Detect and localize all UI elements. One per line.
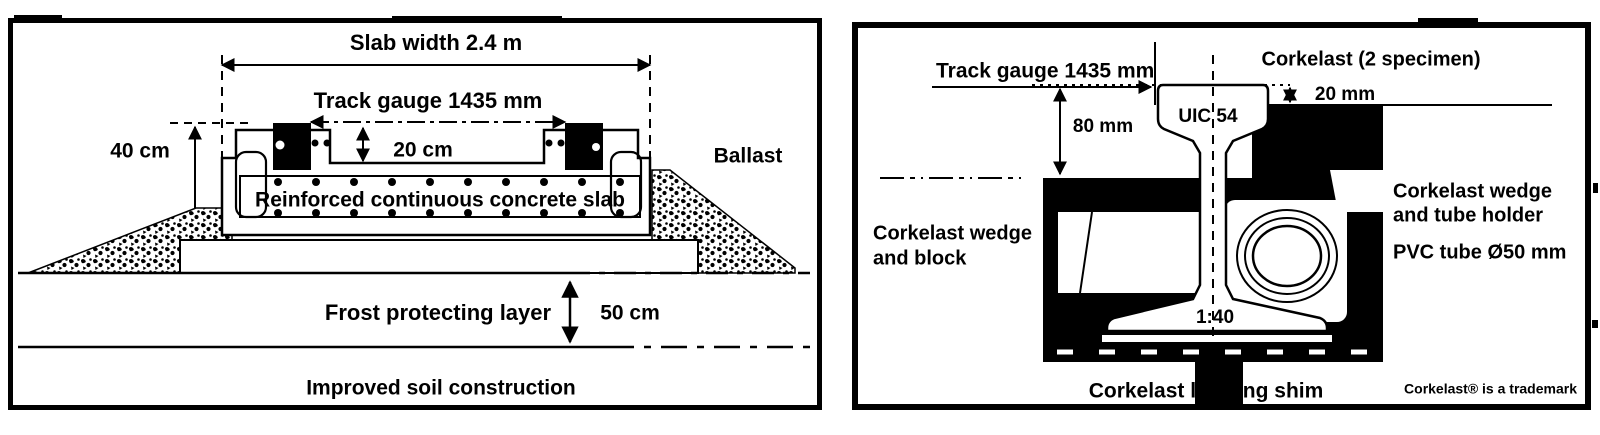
frost-layer-label: Frost protecting layer <box>325 300 552 325</box>
shim-label: Corkelast leveling shim <box>1089 380 1324 403</box>
track-gauge-label: Track gauge 1435 mm <box>314 88 543 113</box>
fastening-bolt-hole-left <box>276 141 285 150</box>
slab-text-label: Reinforced continuous concrete slab <box>255 189 625 212</box>
embedded-rail-panel: Track gauge 1435 mm Corkelast (2 specime… <box>852 22 1591 410</box>
dim-20cm-label: 20 cm <box>393 139 453 162</box>
support-layer <box>180 240 698 273</box>
ballast-label: Ballast <box>714 145 783 168</box>
rail-type-label: UIC 54 <box>1178 106 1238 127</box>
leveling-shim-plate <box>1101 334 1333 343</box>
wedge-block-label-line2: and block <box>873 247 967 269</box>
scan-artifact <box>1592 320 1598 328</box>
wedge-holder-label-line1: Corkelast wedge <box>1393 180 1552 202</box>
scanned-figure: Slab width 2.4 m Track gauge 1435 mm 40 … <box>0 0 1600 435</box>
dim-50cm-label: 50 cm <box>600 302 660 325</box>
pvc-tube-bore <box>1253 226 1321 286</box>
dim-40cm-label: 40 cm <box>110 140 170 163</box>
soil-label: Improved soil construction <box>306 377 576 400</box>
wedge-holder-label-line2: and tube holder <box>1393 204 1543 226</box>
incline-label: 1:40 <box>1196 307 1234 328</box>
track-gauge-label: Track gauge 1435 mm <box>936 60 1154 83</box>
dim-20mm-label: 20 mm <box>1315 84 1375 105</box>
dim-80mm-label: 80 mm <box>1073 116 1133 137</box>
trademark-label: Corkelast® is a trademark <box>1404 381 1577 397</box>
fastening-bolt-hole-right <box>592 143 600 151</box>
specimen-label: Corkelast (2 specimen) <box>1262 48 1481 70</box>
wedge-block-label-line1: Corkelast wedge <box>873 222 1032 244</box>
pvc-tube-label: PVC tube Ø50 mm <box>1393 241 1566 263</box>
scan-artifact <box>1593 183 1598 193</box>
embedded-rail-drawing: Track gauge 1435 mm Corkelast (2 specime… <box>852 22 1591 410</box>
slab-track-panel: Slab width 2.4 m Track gauge 1435 mm 40 … <box>8 18 822 410</box>
slab-width-label: Slab width 2.4 m <box>350 30 522 55</box>
wedge-block-area <box>1058 212 1201 293</box>
slab-track-drawing: Slab width 2.4 m Track gauge 1435 mm 40 … <box>8 18 822 410</box>
